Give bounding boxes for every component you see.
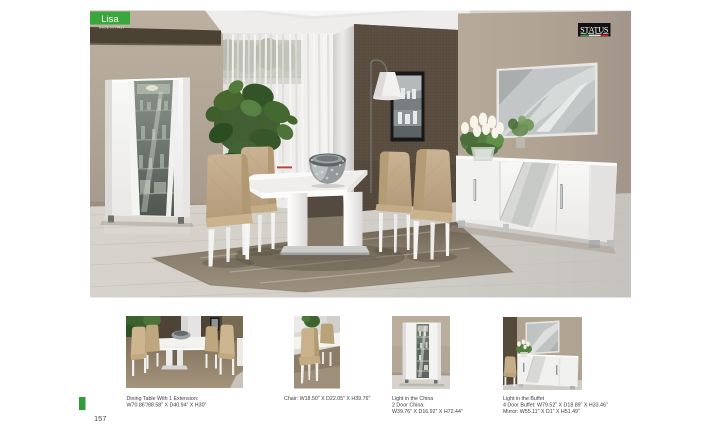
svg-text:157: 157 (94, 414, 107, 423)
svg-text:W39.76” X D16.92” X H72.44”: W39.76” X D16.92” X H72.44” (392, 409, 463, 415)
svg-text:Lisa: Lisa (101, 14, 119, 25)
svg-text:Light in the Buffet: Light in the Buffet (503, 396, 545, 402)
svg-text:W70.86”/88.58” X D40.94” X H30: W70.86”/88.58” X D40.94” X H30” (127, 403, 207, 409)
svg-text:Light in the China: Light in the China (392, 396, 433, 402)
svg-text:2 Door China:: 2 Door China: (392, 403, 425, 409)
svg-text:Dining Table With 1 Extension:: Dining Table With 1 Extension: (127, 396, 199, 402)
svg-text:MADE IN ITALY: MADE IN ITALY (99, 25, 125, 29)
svg-text:Mirror: W55.11” X D1” X H51.49: Mirror: W55.11” X D1” X H51.49” (503, 409, 580, 415)
svg-text:Chair: W18.50” X D22.05” X H39: Chair: W18.50” X D22.05” X H39.76” (284, 396, 370, 402)
svg-text:4 Door Buffet: W79.52” X D18.8: 4 Door Buffet: W79.52” X D18.89” X H33.4… (503, 403, 608, 409)
svg-text:STATUS: STATUS (580, 25, 609, 34)
